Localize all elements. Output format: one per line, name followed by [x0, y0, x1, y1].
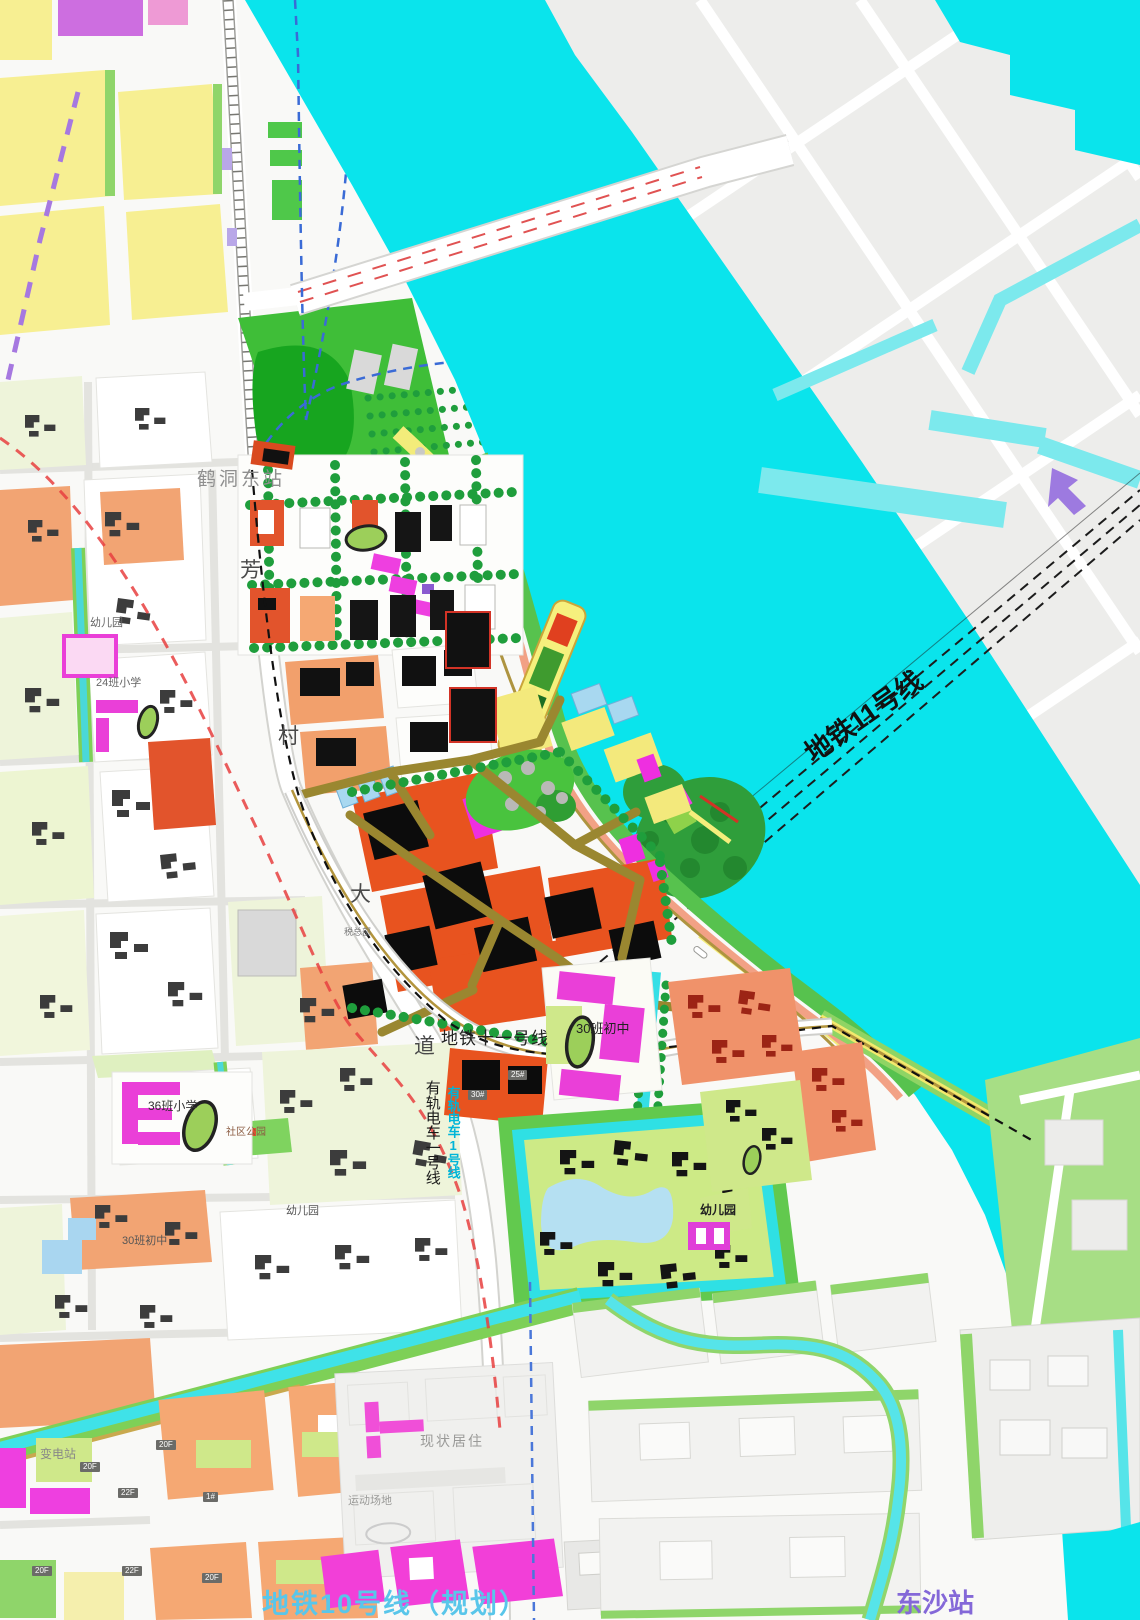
- building-badge: 30#: [468, 1090, 487, 1100]
- school-30: [542, 958, 662, 1101]
- map-canvas: [0, 0, 1140, 1620]
- floor-badge: 1#: [203, 1492, 218, 1502]
- floor-badge: 20F: [156, 1440, 176, 1450]
- school-36: [112, 1072, 252, 1164]
- building-badge: 25#: [508, 1070, 527, 1080]
- floor-badge: 22F: [122, 1566, 142, 1576]
- south-gray-blocks: [572, 1274, 936, 1620]
- floor-badge: 22F: [118, 1488, 138, 1498]
- floor-badge: 20F: [32, 1566, 52, 1576]
- floor-badge: 20F: [202, 1573, 222, 1583]
- floor-badge: 20F: [80, 1462, 100, 1472]
- master-plan-map: 鹤洞东站 芳 村 大 道 地铁11号线 地铁十一号线 有轨电车一号线 有轨电车1…: [0, 0, 1140, 1620]
